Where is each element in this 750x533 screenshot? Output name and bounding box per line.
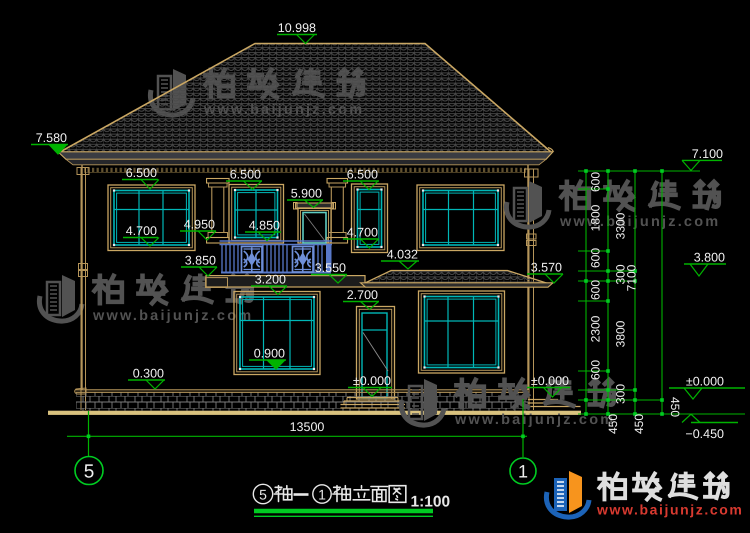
svg-text:4.032: 4.032 <box>387 248 418 262</box>
svg-text:1800: 1800 <box>589 204 603 231</box>
svg-text:1: 1 <box>318 487 326 503</box>
svg-text:600: 600 <box>589 280 603 300</box>
svg-text:5: 5 <box>259 487 267 503</box>
svg-text:450: 450 <box>632 414 646 434</box>
svg-text:7.580: 7.580 <box>36 131 67 145</box>
svg-text:3.200: 3.200 <box>255 273 286 287</box>
svg-text:300: 300 <box>614 384 628 404</box>
svg-text:4.700: 4.700 <box>347 226 378 240</box>
svg-text:450: 450 <box>668 397 682 417</box>
svg-text:3.570: 3.570 <box>531 261 562 275</box>
svg-text:6.500: 6.500 <box>126 166 157 180</box>
svg-text:3300: 3300 <box>614 212 628 239</box>
svg-text:1: 1 <box>518 462 528 482</box>
svg-text:−0.450: −0.450 <box>685 427 724 441</box>
svg-text:600: 600 <box>589 360 603 380</box>
svg-text:0.900: 0.900 <box>254 347 285 361</box>
svg-text:±0.000: ±0.000 <box>686 375 724 389</box>
svg-text:6.500: 6.500 <box>347 168 378 182</box>
svg-text:7.100: 7.100 <box>692 147 723 161</box>
svg-text:www.baijunjz.com: www.baijunjz.com <box>596 502 743 518</box>
svg-text:3.550: 3.550 <box>315 261 346 275</box>
svg-text:1:100: 1:100 <box>411 494 451 511</box>
svg-text:5: 5 <box>84 462 95 483</box>
svg-text:3800: 3800 <box>614 320 628 347</box>
svg-text:2.700: 2.700 <box>347 288 378 302</box>
svg-text:±0.000: ±0.000 <box>531 374 569 388</box>
svg-text:3.800: 3.800 <box>694 251 725 265</box>
svg-text:4.950: 4.950 <box>184 218 215 232</box>
svg-text:0.300: 0.300 <box>133 367 164 381</box>
svg-text:13500: 13500 <box>290 420 325 434</box>
svg-text:5.900: 5.900 <box>291 187 322 201</box>
svg-text:10.998: 10.998 <box>278 21 316 35</box>
svg-text:±0.000: ±0.000 <box>353 374 391 388</box>
svg-text:www.baijunjz.com: www.baijunjz.com <box>559 214 720 230</box>
svg-text:450: 450 <box>606 414 620 434</box>
svg-text:600: 600 <box>589 172 603 192</box>
svg-text:7100: 7100 <box>625 264 639 291</box>
svg-text:2300: 2300 <box>589 315 603 342</box>
svg-text:6.500: 6.500 <box>230 168 261 182</box>
svg-text:600: 600 <box>589 248 603 268</box>
svg-text:www.baijunjz.com: www.baijunjz.com <box>92 308 253 324</box>
svg-text:4.850: 4.850 <box>249 219 280 233</box>
svg-text:4.700: 4.700 <box>126 224 157 238</box>
svg-text:3.850: 3.850 <box>185 254 216 268</box>
